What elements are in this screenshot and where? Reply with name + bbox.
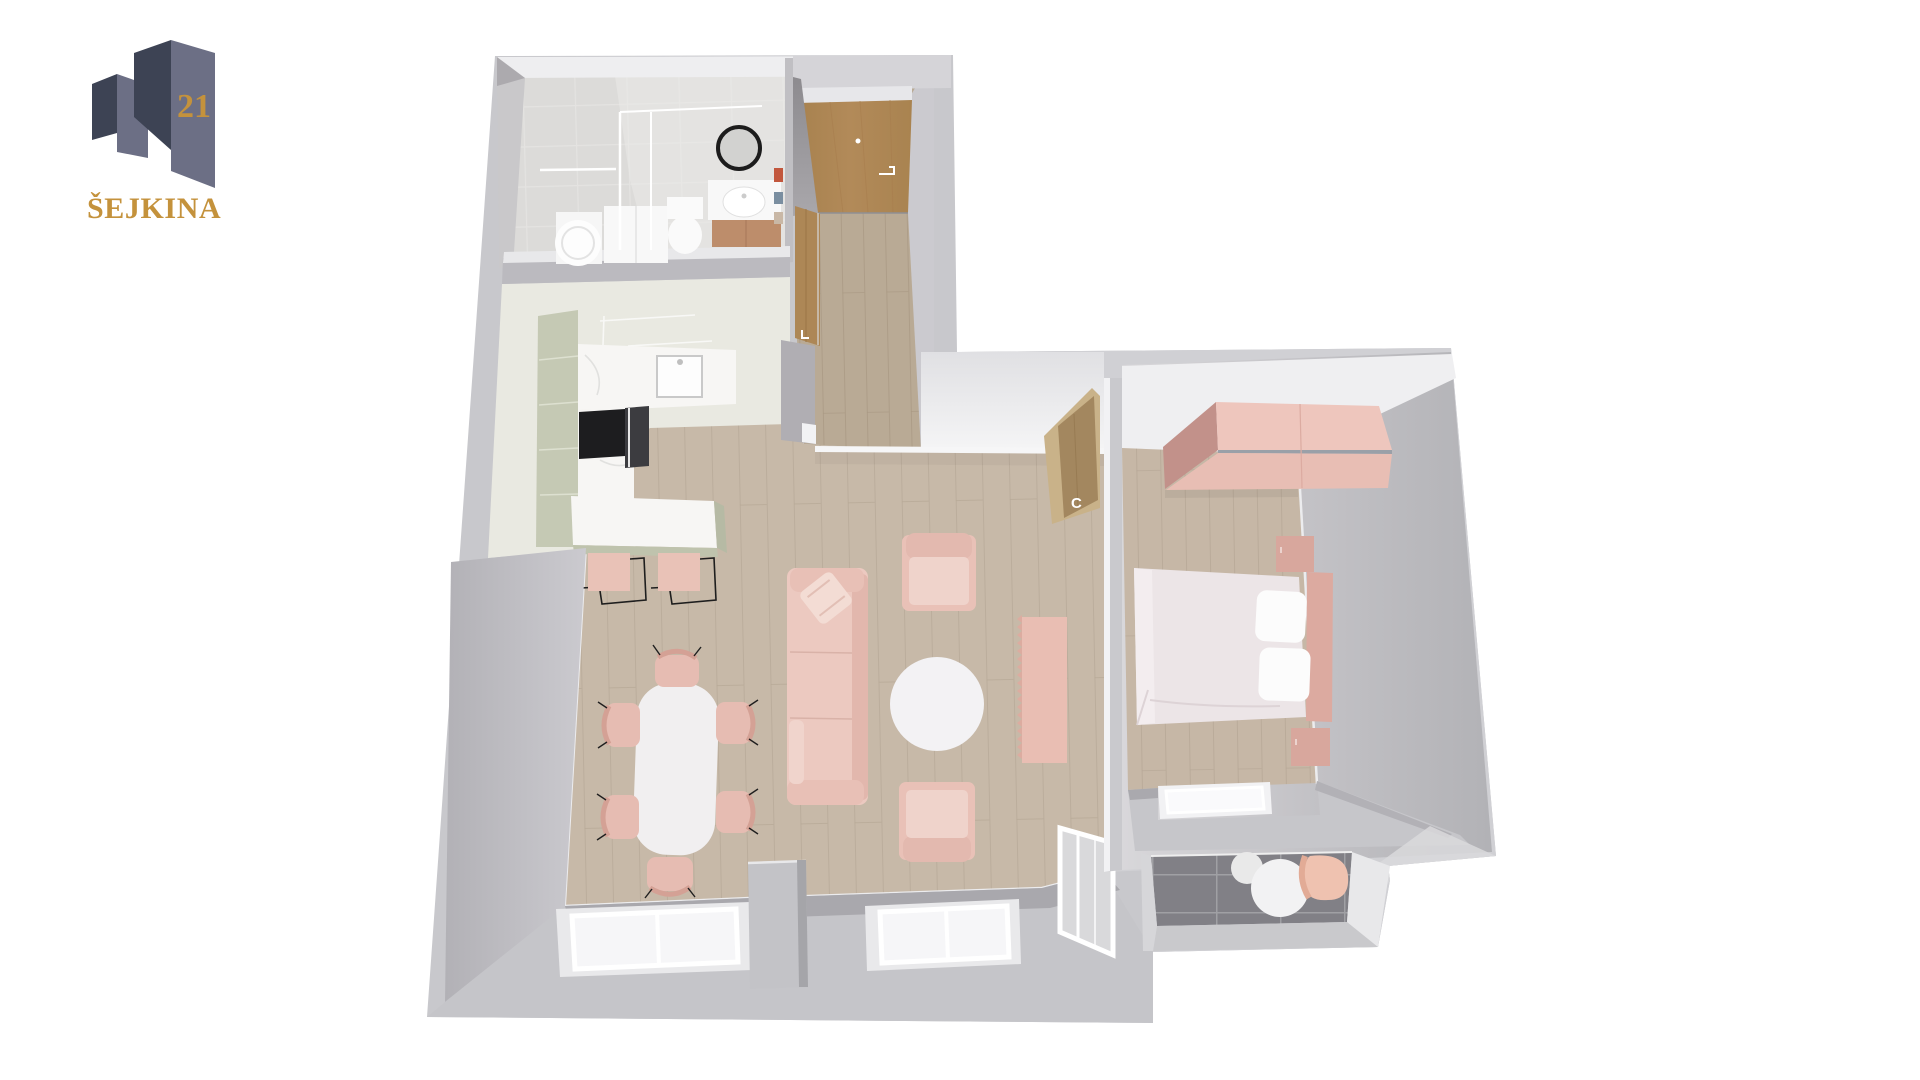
svg-text:21: 21 — [177, 88, 211, 125]
svg-text:C: C — [1071, 495, 1082, 512]
svg-text:ŠEJKINA: ŠEJKINA — [87, 192, 221, 225]
